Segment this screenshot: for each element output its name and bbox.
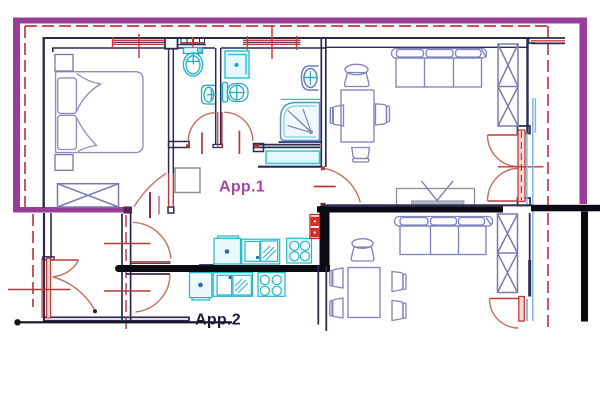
svg-text:App.1: App.1 <box>219 179 265 196</box>
svg-text:App.2: App.2 <box>195 312 241 329</box>
